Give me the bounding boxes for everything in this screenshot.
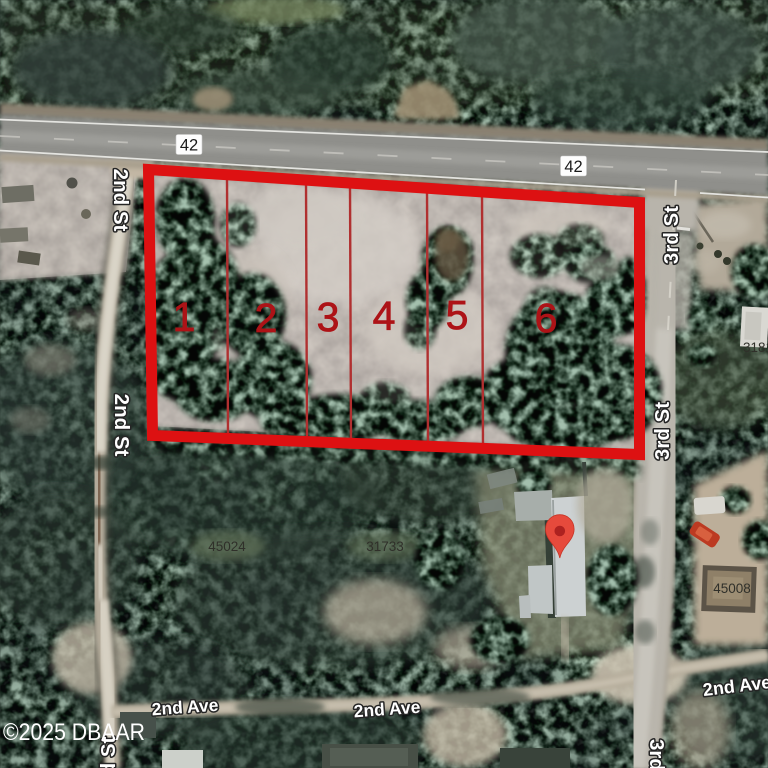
- svg-text:45024: 45024: [208, 539, 246, 554]
- svg-text:©2025 DBAAR: ©2025 DBAAR: [3, 719, 145, 746]
- svg-text:1: 1: [173, 294, 196, 340]
- svg-text:3rd St: 3rd St: [660, 206, 683, 264]
- svg-text:3rd St: 3rd St: [651, 402, 674, 460]
- svg-text:6: 6: [535, 295, 558, 341]
- svg-text:42: 42: [180, 137, 198, 155]
- svg-text:3181: 3181: [743, 340, 768, 355]
- svg-text:4: 4: [373, 293, 396, 339]
- svg-text:3rd St: 3rd St: [645, 739, 668, 768]
- svg-text:42: 42: [564, 158, 582, 176]
- svg-text:3: 3: [317, 294, 340, 340]
- svg-text:45008: 45008: [713, 581, 751, 596]
- svg-text:2nd St: 2nd St: [110, 394, 133, 457]
- svg-text:2nd St: 2nd St: [109, 169, 132, 232]
- svg-text:2: 2: [255, 295, 278, 341]
- svg-text:31733: 31733: [366, 539, 404, 554]
- svg-text:5: 5: [446, 292, 469, 338]
